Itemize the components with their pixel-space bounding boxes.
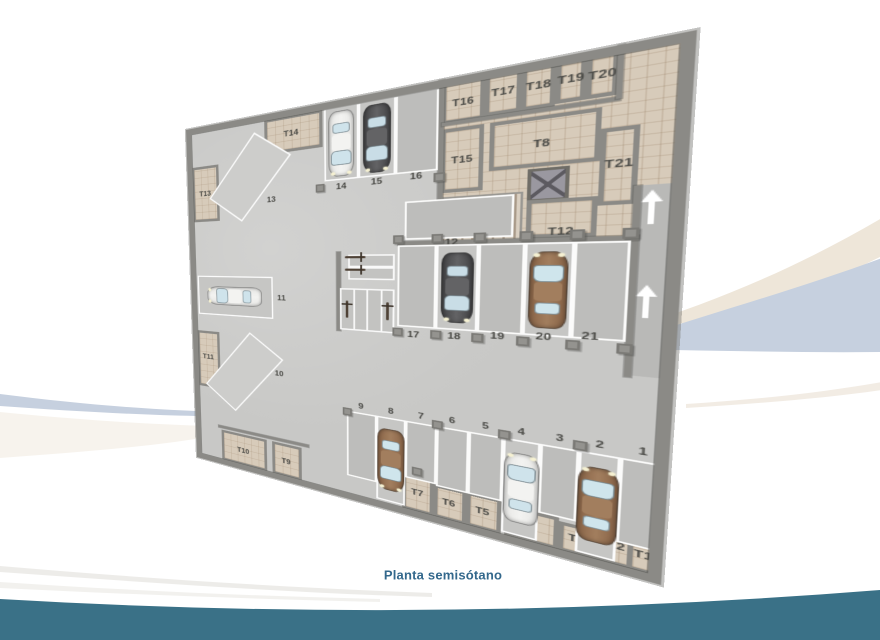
caption: Planta semisótano	[384, 568, 502, 583]
footer-band-shape	[0, 590, 880, 640]
floor-plan-page: T16T17T18T19T20T15T8T21T12T14T13T11T10T9…	[0, 0, 880, 640]
